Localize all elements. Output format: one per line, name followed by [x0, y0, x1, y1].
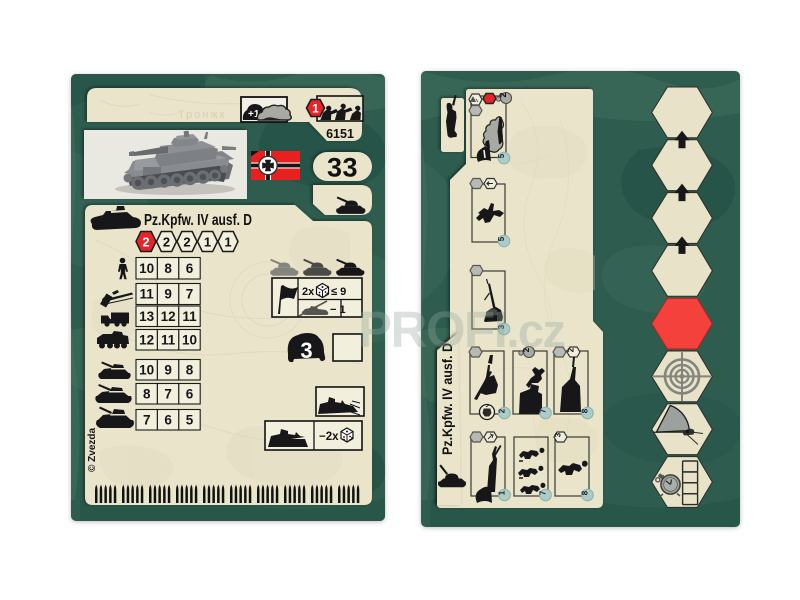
svg-text:13: 13 [139, 309, 155, 324]
svg-text:10: 10 [139, 363, 154, 378]
svg-text:10: 10 [139, 261, 154, 276]
svg-text:2: 2 [498, 92, 508, 97]
svg-text:5: 5 [186, 413, 194, 428]
svg-text:10: 10 [182, 333, 197, 348]
svg-text:3: 3 [554, 432, 563, 437]
svg-text:9: 9 [164, 287, 172, 302]
svg-text:8: 8 [581, 490, 590, 495]
svg-text:2: 2 [498, 408, 507, 413]
svg-text:12: 12 [161, 309, 176, 324]
svg-text:5: 5 [497, 236, 506, 241]
svg-text:8: 8 [581, 408, 590, 413]
svg-text:2: 2 [163, 235, 170, 250]
svg-text:≤ 9: ≤ 9 [331, 286, 346, 298]
svg-text:1: 1 [498, 490, 507, 495]
svg-text:7: 7 [143, 413, 151, 428]
svg-text:12: 12 [139, 333, 154, 348]
svg-text:5: 5 [497, 153, 506, 158]
svg-text:2: 2 [183, 235, 190, 250]
svg-text:7: 7 [186, 287, 194, 302]
svg-text:© Zvezda: © Zvezda [87, 428, 98, 472]
svg-text:Pz.Kpfw. IV ausf. D: Pz.Kpfw. IV ausf. D [144, 212, 252, 229]
svg-text:6: 6 [164, 413, 172, 428]
svg-text:3: 3 [300, 338, 312, 363]
svg-text:PROFI.cz: PROFI.cz [358, 301, 565, 358]
svg-text:6: 6 [186, 387, 194, 402]
svg-text:2: 2 [567, 347, 576, 352]
svg-text:2x: 2x [302, 286, 315, 298]
svg-text:6: 6 [186, 261, 194, 276]
svg-text:Тронжк: Тронжк [178, 109, 227, 121]
svg-text:7: 7 [539, 490, 548, 495]
svg-text:7: 7 [539, 408, 548, 413]
svg-text:2: 2 [142, 235, 149, 250]
svg-text:1: 1 [224, 235, 231, 250]
svg-text:6151: 6151 [326, 127, 354, 141]
svg-text:11: 11 [140, 287, 155, 302]
svg-text:7: 7 [164, 387, 172, 402]
svg-text:11: 11 [182, 309, 197, 324]
svg-text:Pz.Kpfw. IV ausf. D: Pz.Kpfw. IV ausf. D [439, 343, 455, 455]
svg-text:8: 8 [186, 363, 194, 378]
svg-text:8: 8 [164, 261, 172, 276]
svg-text:8: 8 [143, 387, 151, 402]
svg-text:1: 1 [204, 235, 211, 250]
svg-text:− 1: − 1 [330, 304, 346, 316]
svg-text:9: 9 [164, 363, 172, 378]
svg-text:33: 33 [327, 153, 358, 183]
svg-text:−2x: −2x [319, 431, 339, 443]
svg-text:11: 11 [161, 333, 176, 348]
svg-text:1: 1 [312, 102, 319, 116]
